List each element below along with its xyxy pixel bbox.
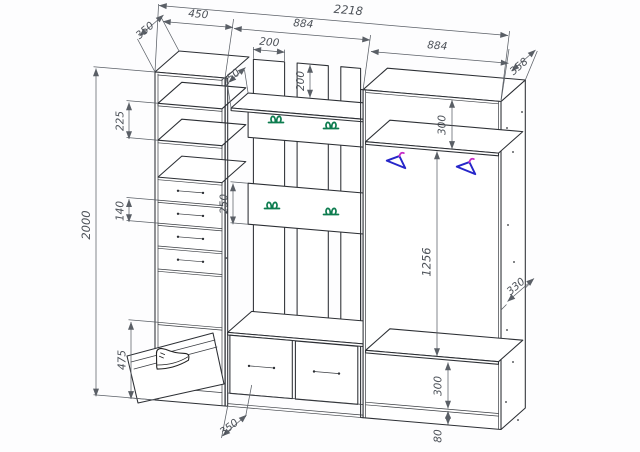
dim-slat-width: 200 bbox=[253, 36, 284, 61]
dim-label-shoe-cabinet-height: 475 bbox=[117, 350, 129, 370]
dim-label-right-width: 884 bbox=[427, 39, 448, 53]
dim-label-slat-upstand: 200 bbox=[295, 71, 307, 91]
dim-drawer-height: 140 bbox=[115, 197, 159, 223]
dim-label-hanging-height: 1256 bbox=[420, 247, 434, 276]
dim-label-left-height: 2000 bbox=[79, 210, 93, 239]
dim-label-plinth-height: 80 bbox=[433, 429, 445, 443]
left-cabinet-shelves bbox=[158, 82, 246, 185]
dim-label-drawer-height: 140 bbox=[115, 201, 127, 221]
dim-label-left-width: 450 bbox=[188, 8, 209, 22]
dim-label-slat-width: 200 bbox=[259, 36, 280, 50]
dim-label-total-width: 2218 bbox=[333, 2, 363, 18]
dim-right-depth: 358 bbox=[508, 50, 538, 80]
dim-label-wardrobe-bottom-gap: 300 bbox=[433, 376, 445, 396]
dim-label-bench-depth: 350 bbox=[218, 417, 241, 439]
dim-shelf-gap: 225 bbox=[115, 101, 159, 141]
hallway-furniture-drawing: 2218 450 884 884 358 350 bbox=[0, 0, 640, 452]
technical-drawing-page: 2218 450 884 884 358 350 bbox=[0, 0, 640, 452]
dim-label-middle-width: 884 bbox=[293, 17, 314, 31]
dim-label-shelf-gap: 225 bbox=[115, 111, 127, 131]
dim-label-left-depth: 350 bbox=[134, 19, 157, 41]
dim-label-hook-rail-height: 250 bbox=[219, 194, 231, 214]
dim-label-wardrobe-top-gap: 300 bbox=[437, 115, 449, 135]
